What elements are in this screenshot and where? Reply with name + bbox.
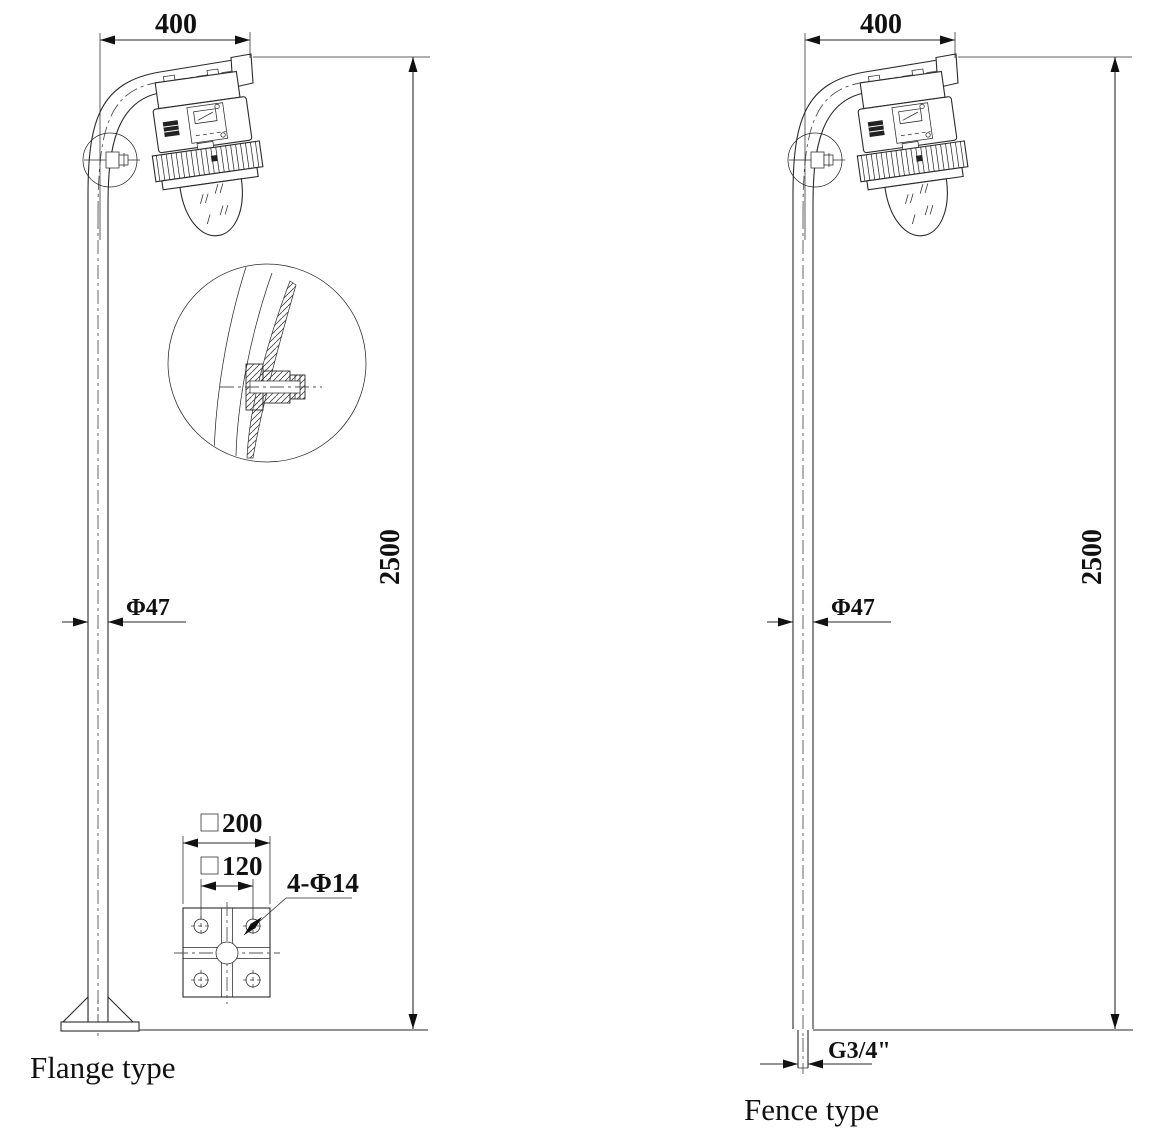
name-plate (187, 103, 228, 144)
cable-connector (163, 120, 180, 137)
flange-foot (61, 997, 139, 1031)
dim-4xphi14-label: 4-Φ14 (287, 868, 359, 898)
square-symbol (201, 857, 218, 874)
dim-2500-label: 2500 (1077, 529, 1108, 585)
fence-figure: 400 2500 Φ47 (744, 9, 1133, 1127)
dim-400-label: 400 (860, 9, 902, 40)
flange-figure: 400 2500 Φ47 (30, 9, 430, 1085)
center-hole (216, 942, 238, 964)
dim-g34-label: G3/4" (828, 1038, 891, 1064)
fence-dim-pole-diameter: Φ47 (767, 595, 891, 627)
flange-base-plate (61, 1022, 139, 1031)
dim-phi47-label: Φ47 (831, 595, 875, 621)
detail-bubble (168, 264, 366, 462)
square-symbol (201, 814, 218, 831)
dim-2500-label: 2500 (375, 529, 406, 585)
dim-phi47-label: Φ47 (126, 595, 170, 621)
fence-dim-height: 2500 (958, 57, 1132, 1029)
drawing-canvas: 400 2500 Φ47 (0, 0, 1170, 1140)
lamp-head (142, 65, 272, 243)
pole-and-lamp-assembly (83, 54, 272, 1038)
fence-type-label: Fence type (744, 1092, 879, 1127)
base-plate-detail: 200 120 4-Φ14 (174, 808, 359, 1004)
technical-drawing: 400 2500 Φ47 (0, 0, 1170, 1140)
dim-200-label: 200 (222, 808, 263, 838)
flange-dim-pole-diameter: Φ47 (62, 595, 186, 627)
glass-dome (180, 179, 249, 240)
dim-400-label: 400 (155, 9, 197, 40)
fence-dim-thread: G3/4" (760, 1038, 891, 1069)
thread-stub (798, 1030, 808, 1074)
dim-120-label: 120 (222, 851, 263, 881)
flange-type-label: Flange type (30, 1050, 176, 1085)
